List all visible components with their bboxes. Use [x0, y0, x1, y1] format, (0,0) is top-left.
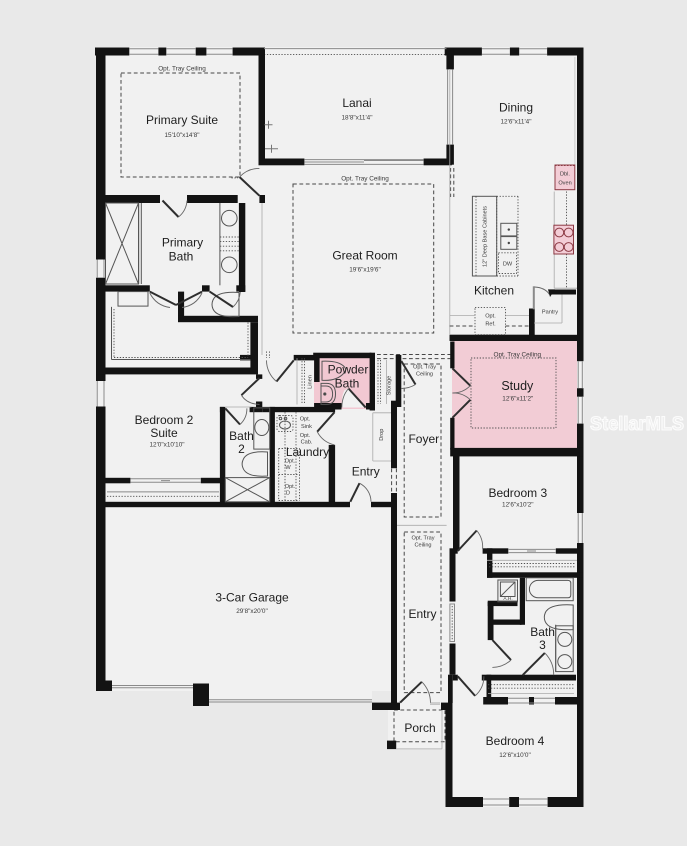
svg-text:Opt.: Opt. [285, 459, 296, 465]
svg-text:Opt.: Opt. [300, 433, 311, 439]
svg-text:Opt.: Opt. [300, 417, 311, 423]
svg-text:Opt. Tray: Opt. Tray [413, 365, 436, 371]
svg-text:Bedroom 2: Bedroom 2 [135, 413, 194, 427]
svg-text:12'6"x10'0": 12'6"x10'0" [499, 752, 531, 759]
svg-text:12'6"x11'4": 12'6"x11'4" [500, 119, 531, 126]
svg-text:Powder: Powder [328, 363, 369, 377]
svg-text:Dbl.: Dbl. [560, 172, 570, 178]
svg-text:Ceiling: Ceiling [414, 542, 431, 548]
svg-text:Bedroom 3: Bedroom 3 [488, 486, 547, 500]
svg-text:12'6"x10'2": 12'6"x10'2" [502, 501, 534, 508]
svg-text:Opt.: Opt. [285, 484, 296, 490]
svg-text:Kitchen: Kitchen [474, 284, 514, 298]
svg-text:Foyer: Foyer [408, 432, 439, 446]
svg-text:Opt. Tray: Opt. Tray [411, 536, 434, 542]
svg-text:18'8"x11'4": 18'8"x11'4" [341, 115, 372, 122]
svg-text:Entry: Entry [352, 465, 380, 479]
svg-text:StellarMLS: StellarMLS [590, 413, 684, 435]
svg-text:3-Car Garage: 3-Car Garage [215, 591, 289, 605]
svg-text:A.H.: A.H. [503, 596, 512, 602]
svg-text:Opt. Tray Ceiling: Opt. Tray Ceiling [494, 351, 542, 358]
svg-text:3: 3 [539, 638, 546, 652]
svg-text:Laundry: Laundry [286, 445, 329, 459]
svg-text:Bath: Bath [229, 429, 254, 443]
svg-text:Bath: Bath [335, 377, 360, 391]
svg-text:D: D [286, 491, 290, 497]
svg-text:Bath: Bath [530, 625, 555, 639]
svg-text:Lanai: Lanai [342, 96, 371, 110]
svg-text:12" Deep Base Cabinets: 12" Deep Base Cabinets [483, 206, 489, 267]
svg-text:Storage: Storage [387, 376, 393, 396]
svg-text:Primary Suite: Primary Suite [146, 113, 218, 127]
svg-text:12'6"x11'2": 12'6"x11'2" [502, 396, 533, 403]
svg-text:Ceiling: Ceiling [416, 371, 433, 377]
svg-text:19'6"x19'6": 19'6"x19'6" [349, 267, 381, 274]
svg-text:Primary: Primary [162, 236, 203, 250]
svg-text:Ref.: Ref. [485, 322, 496, 328]
svg-text:Bedroom 4: Bedroom 4 [486, 734, 545, 748]
svg-text:Dining: Dining [499, 101, 533, 115]
svg-text:DW: DW [503, 262, 513, 268]
svg-text:W: W [285, 465, 291, 471]
svg-text:12'0"x10'10": 12'0"x10'10" [149, 441, 184, 448]
svg-text:Study: Study [501, 379, 534, 393]
svg-text:29'8"x20'0": 29'8"x20'0" [236, 608, 268, 615]
svg-text:Entry: Entry [408, 607, 436, 621]
svg-text:Oven: Oven [558, 181, 571, 187]
svg-text:Opt. Tray Ceiling: Opt. Tray Ceiling [158, 66, 206, 73]
svg-text:Suite: Suite [150, 426, 178, 440]
svg-text:Bath: Bath [169, 250, 194, 264]
svg-text:2: 2 [238, 442, 245, 456]
svg-text:15'10"x14'8": 15'10"x14'8" [164, 132, 199, 139]
svg-text:Great Room: Great Room [332, 249, 397, 263]
svg-text:Drop: Drop [379, 429, 385, 441]
svg-text:Linen: Linen [308, 375, 314, 389]
svg-text:Cab.: Cab. [301, 439, 313, 445]
svg-text:Sink: Sink [301, 424, 312, 430]
svg-text:Opt. Tray Ceiling: Opt. Tray Ceiling [341, 176, 389, 183]
svg-text:Porch: Porch [404, 721, 435, 735]
svg-text:Opt.: Opt. [485, 314, 496, 320]
svg-text:Pantry: Pantry [542, 310, 558, 316]
